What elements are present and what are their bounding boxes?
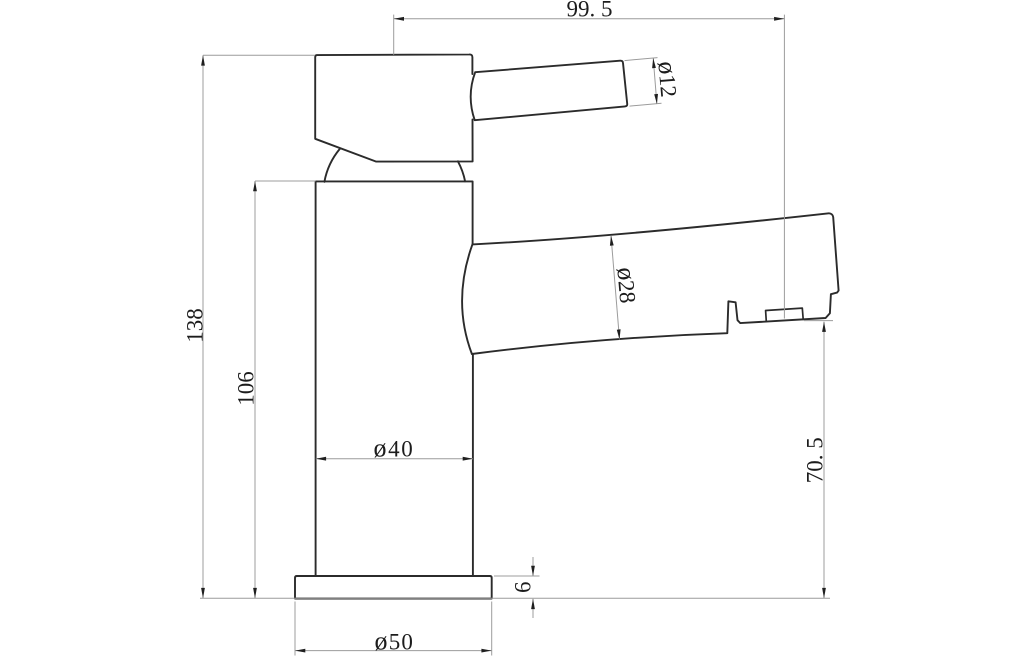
svg-text:ø50: ø50	[375, 627, 415, 656]
svg-text:106: 106	[234, 371, 259, 406]
svg-text:ø28: ø28	[611, 266, 643, 304]
svg-text:ø40: ø40	[374, 434, 415, 463]
svg-text:70. 5: 70. 5	[802, 437, 827, 483]
svg-text:ø12: ø12	[652, 60, 684, 98]
svg-text:99. 5: 99. 5	[567, 0, 613, 22]
svg-text:138: 138	[183, 308, 208, 343]
svg-text:6: 6	[511, 582, 536, 594]
